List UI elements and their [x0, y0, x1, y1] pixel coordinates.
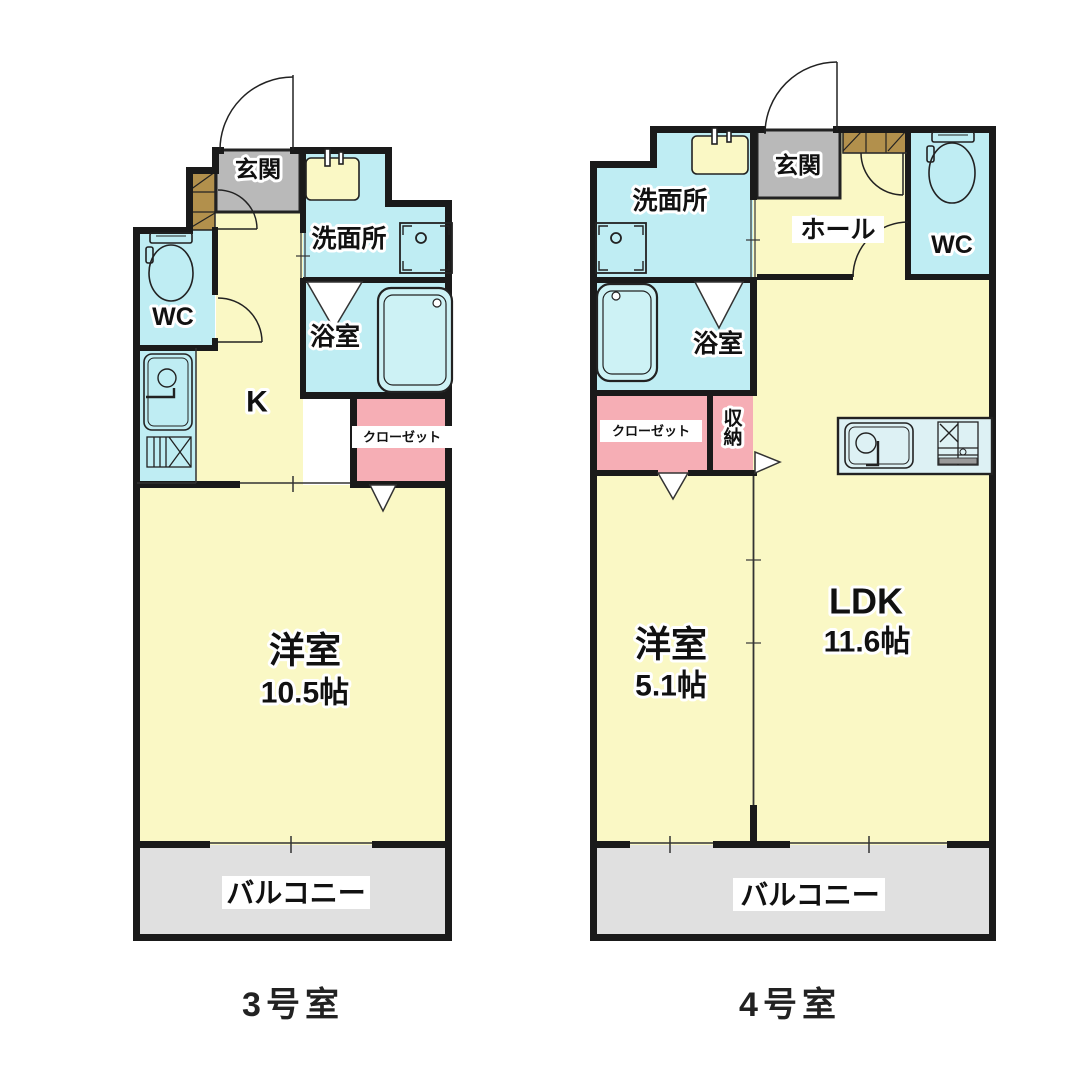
genkan-label: 玄関 — [235, 156, 281, 182]
genkan-label: 玄関 — [775, 152, 821, 178]
entry-door-arc-icon — [220, 75, 293, 150]
kitchen-label: K — [246, 386, 268, 419]
yoshitsu-size-label: 10.5帖 — [261, 677, 349, 710]
ldk-size-label: 11.6帖 — [824, 626, 911, 659]
unit-4-caption: 4号室 — [739, 985, 841, 1024]
senmenjo-label: 洗面所 — [311, 225, 386, 253]
yoshitsu-label: 洋室 — [269, 630, 341, 671]
yokushitsu-label: 浴室 — [310, 322, 360, 351]
wc-label: WC — [152, 303, 194, 331]
yokushitsu-label: 浴室 — [693, 329, 743, 358]
floor-plan-canvas: 玄関 洗面所 WC 浴室 K クローゼット 洋室 10.5帖 バルコニー 3号室 — [0, 0, 1080, 1080]
hall-label: ホール — [800, 216, 875, 244]
storage-label: 収納 — [721, 408, 743, 446]
floor-plan-page: 玄関 洗面所 WC 浴室 K クローゼット 洋室 10.5帖 バルコニー 3号室 — [0, 0, 1080, 1080]
unit-3-plan: 玄関 洗面所 WC 浴室 K クローゼット 洋室 10.5帖 バルコニー 3号室 — [133, 75, 452, 1024]
bathtub-icon — [597, 284, 657, 381]
senmenjo-label: 洗面所 — [632, 187, 707, 215]
wc-label: WC — [931, 231, 973, 259]
kitchen-counter — [838, 418, 992, 474]
yoshitsu-size-label: 5.1帖 — [635, 670, 707, 703]
room-ldk — [753, 280, 992, 845]
closet-label: クローゼット — [363, 430, 441, 445]
yoshitsu-label: 洋室 — [635, 624, 707, 665]
entry-door-arc-icon — [765, 62, 837, 134]
balcony-label: バルコニー — [740, 880, 879, 911]
unit-3-caption: 3号室 — [242, 985, 344, 1024]
bathtub-icon — [378, 288, 452, 392]
unit-4-plan: 洗面所 玄関 ホール WC 浴室 クローゼット 収納 LDK 11.6帖 洋室 … — [590, 62, 996, 1024]
closet-label: クローゼット — [612, 424, 690, 439]
ldk-label: LDK — [829, 581, 903, 622]
balcony-label: バルコニー — [226, 878, 365, 909]
